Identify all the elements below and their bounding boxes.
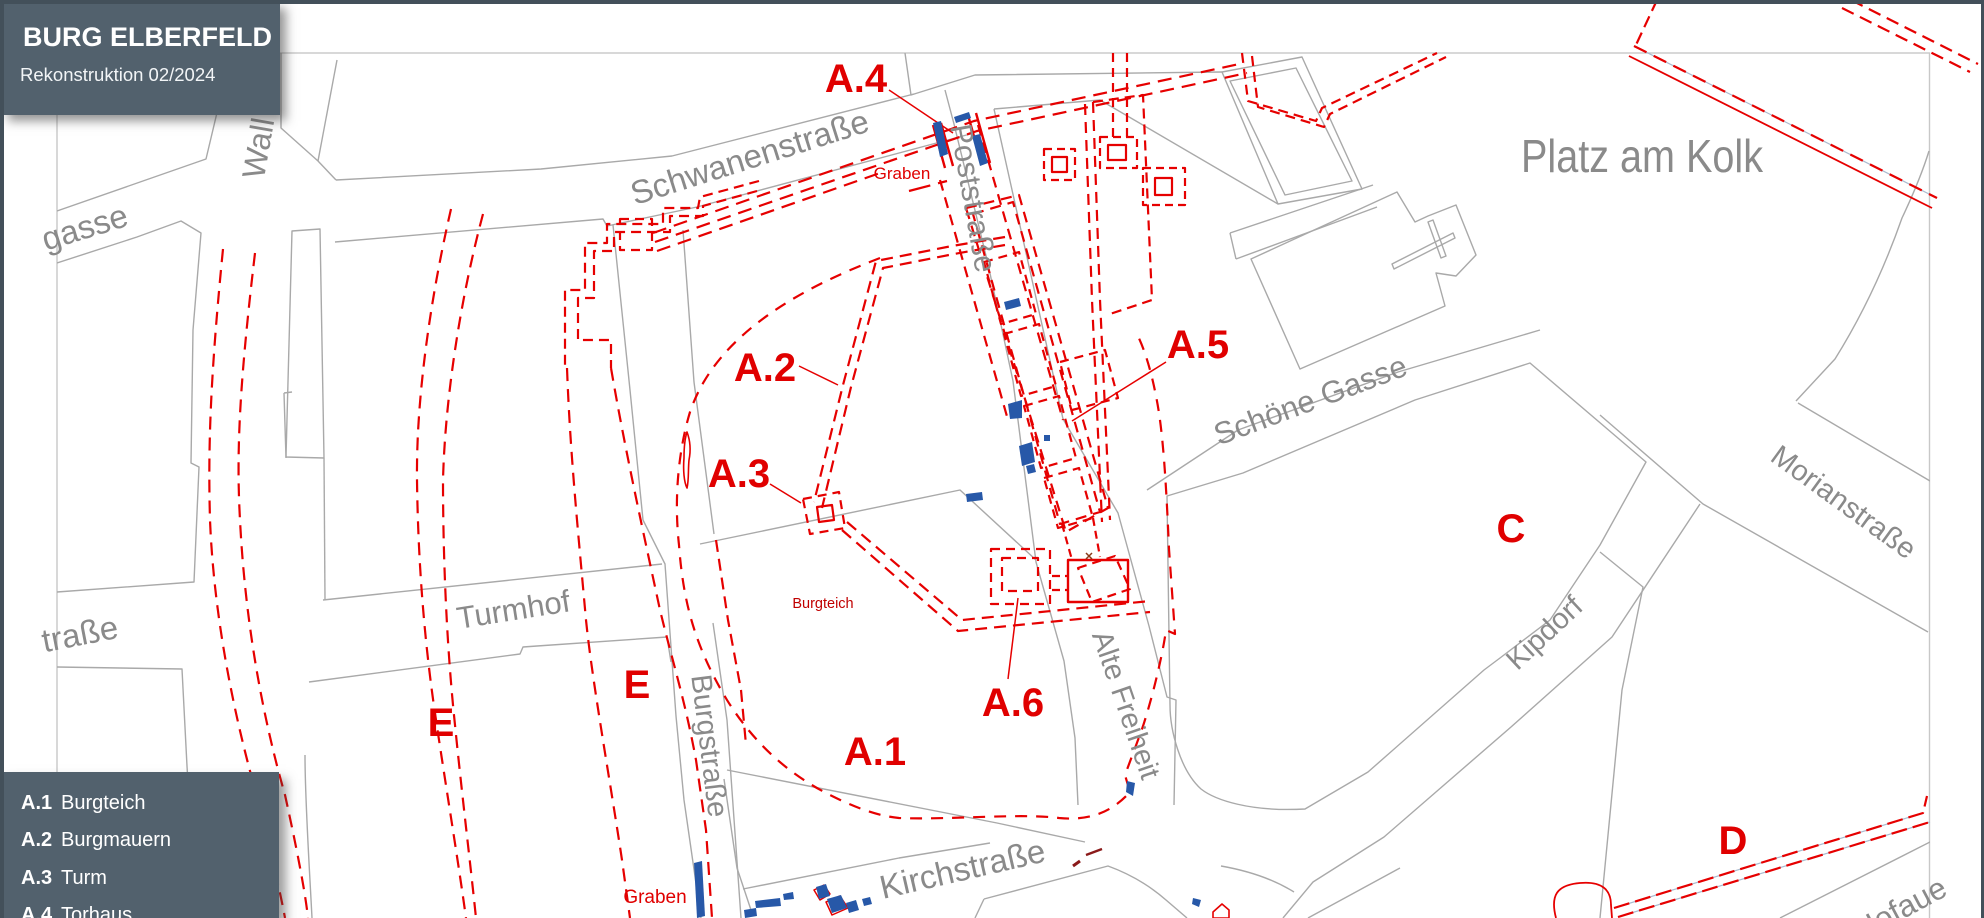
svg-text:E: E (428, 701, 455, 745)
svg-text:traße: traße (38, 608, 121, 659)
svg-text:Burgstraße: Burgstraße (684, 673, 733, 819)
svg-text:Platz am Kolk: Platz am Kolk (1521, 130, 1764, 182)
svg-text:Graben: Graben (623, 887, 686, 908)
svg-text:E: E (624, 663, 651, 707)
svg-text:Burgteich: Burgteich (792, 596, 853, 612)
svg-text:Poststraße: Poststraße (943, 121, 1003, 275)
svg-text:A.6: A.6 (982, 681, 1044, 725)
svg-text:Turmhof: Turmhof (454, 583, 573, 636)
svg-text:A.1: A.1 (844, 730, 906, 774)
svg-text:Kirchstraße: Kirchstraße (876, 832, 1049, 906)
svg-text:A.3: A.3 (708, 452, 770, 496)
svg-text:D: D (1719, 819, 1748, 863)
svg-text:Morianstraße: Morianstraße (1765, 440, 1922, 566)
svg-text:Alte Freiheit: Alte Freiheit (1085, 627, 1166, 784)
svg-text:Graben: Graben (874, 164, 931, 183)
svg-text:gasse: gasse (37, 196, 132, 257)
svg-text:A.4: A.4 (825, 57, 888, 101)
svg-text:A.5: A.5 (1167, 323, 1229, 367)
svg-text:Hofaue: Hofaue (1848, 870, 1953, 918)
svg-text:Wall: Wall (235, 115, 281, 181)
svg-text:Kipdorf: Kipdorf (1500, 590, 1590, 677)
svg-text:C: C (1497, 507, 1526, 551)
svg-text:A.2: A.2 (734, 346, 796, 390)
